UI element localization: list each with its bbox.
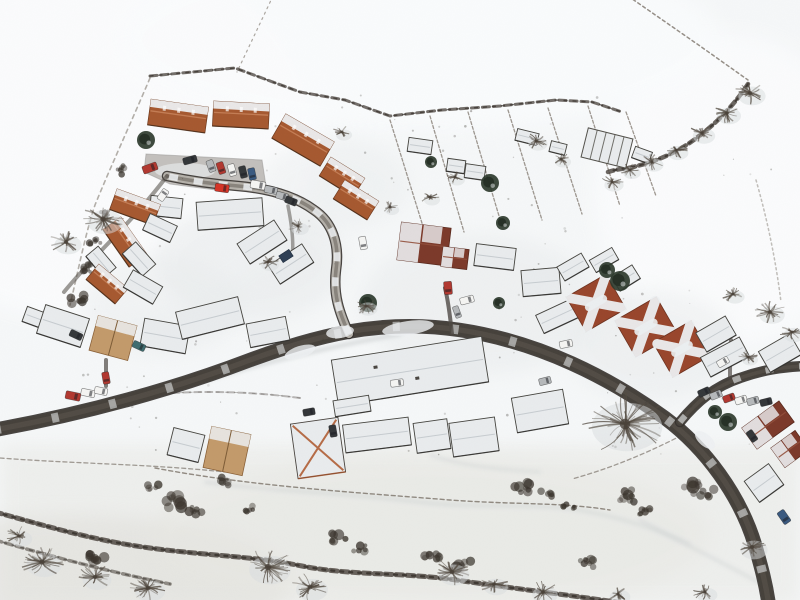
film-grain-overlay — [0, 0, 800, 600]
aerial-photo-frame — [0, 0, 800, 600]
snowy-aerial-photograph — [0, 0, 800, 600]
